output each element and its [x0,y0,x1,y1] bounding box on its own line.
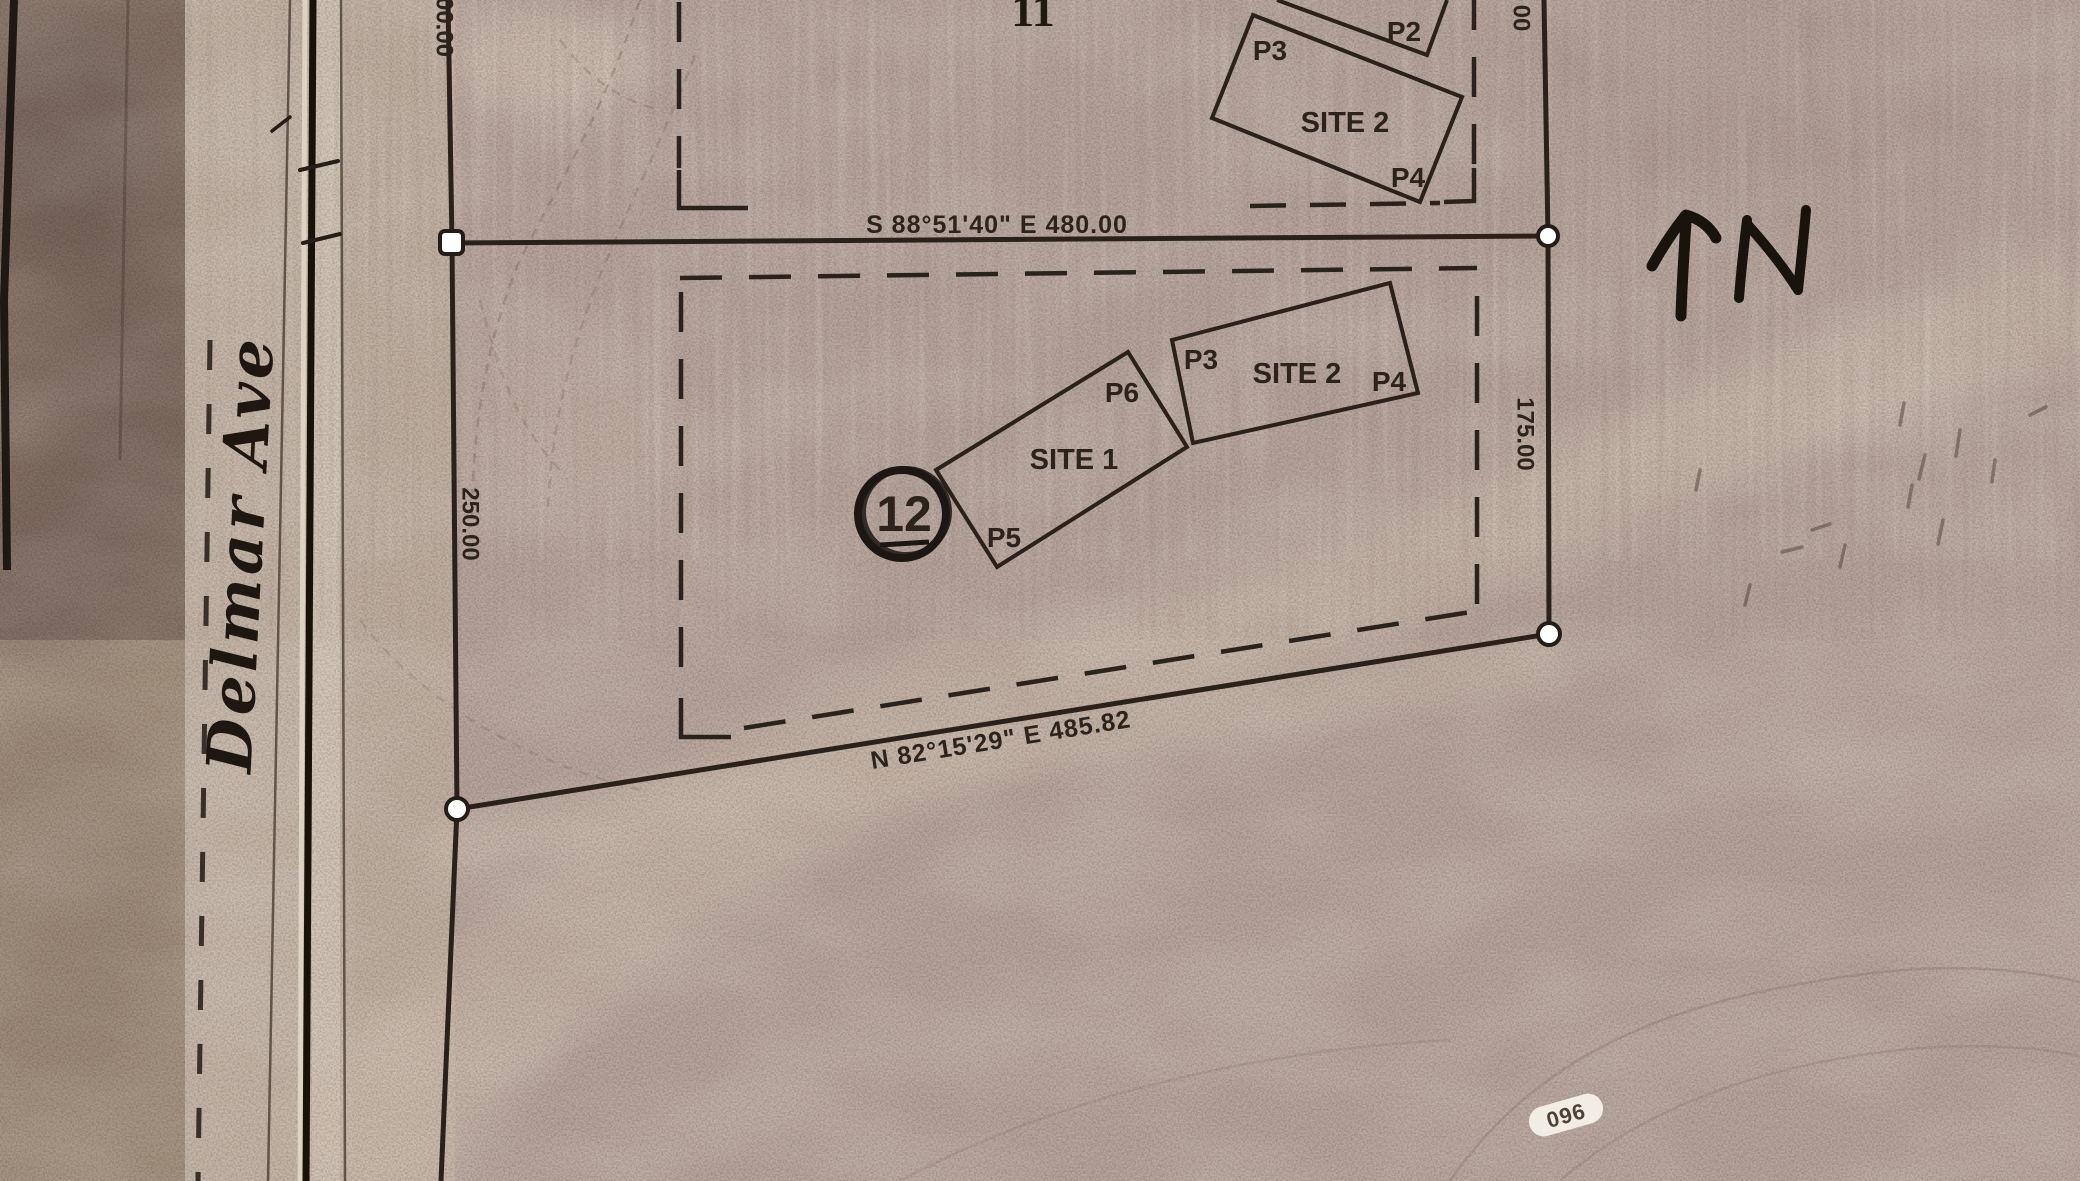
corner-marker-sw [446,798,468,820]
site2-upper-p2: P2 [1387,16,1421,47]
site1-title: SITE 1 [1030,444,1119,476]
site2-upper-p4: P4 [1391,162,1426,193]
dim-right-label: 175.00 [1512,397,1539,470]
corner-marker-se [1538,623,1560,645]
plat-map-scan: 12 11 S 88°51'40" E 480.00 N 82°15'29" E… [0,0,2080,1181]
corner-marker-ne [1538,226,1558,246]
site2-lower-p3: P3 [1184,344,1218,375]
site2-upper-title: SITE 2 [1301,107,1390,139]
corner-marker-nw [440,231,463,254]
bearing-top-label: S 88°51'40" E 480.00 [866,211,1128,239]
site1-p5: P5 [987,522,1021,553]
site1-p6: P6 [1105,377,1139,408]
north-arrow-shaft [1681,222,1686,316]
dim-left-label: 250.00 [457,487,484,560]
dim-right-partial-label: 00 [1508,5,1535,32]
site2-lower-title: SITE 2 [1253,358,1342,390]
parcel-12-underline [880,542,929,545]
parcel-12-label: 12 [876,486,932,542]
site2-upper-p3: P3 [1253,35,1287,66]
site2-lower-p4: P4 [1372,366,1407,397]
dim-left-partial-label: 00.00 [431,0,458,57]
section-11-label: 11 [1011,0,1054,36]
